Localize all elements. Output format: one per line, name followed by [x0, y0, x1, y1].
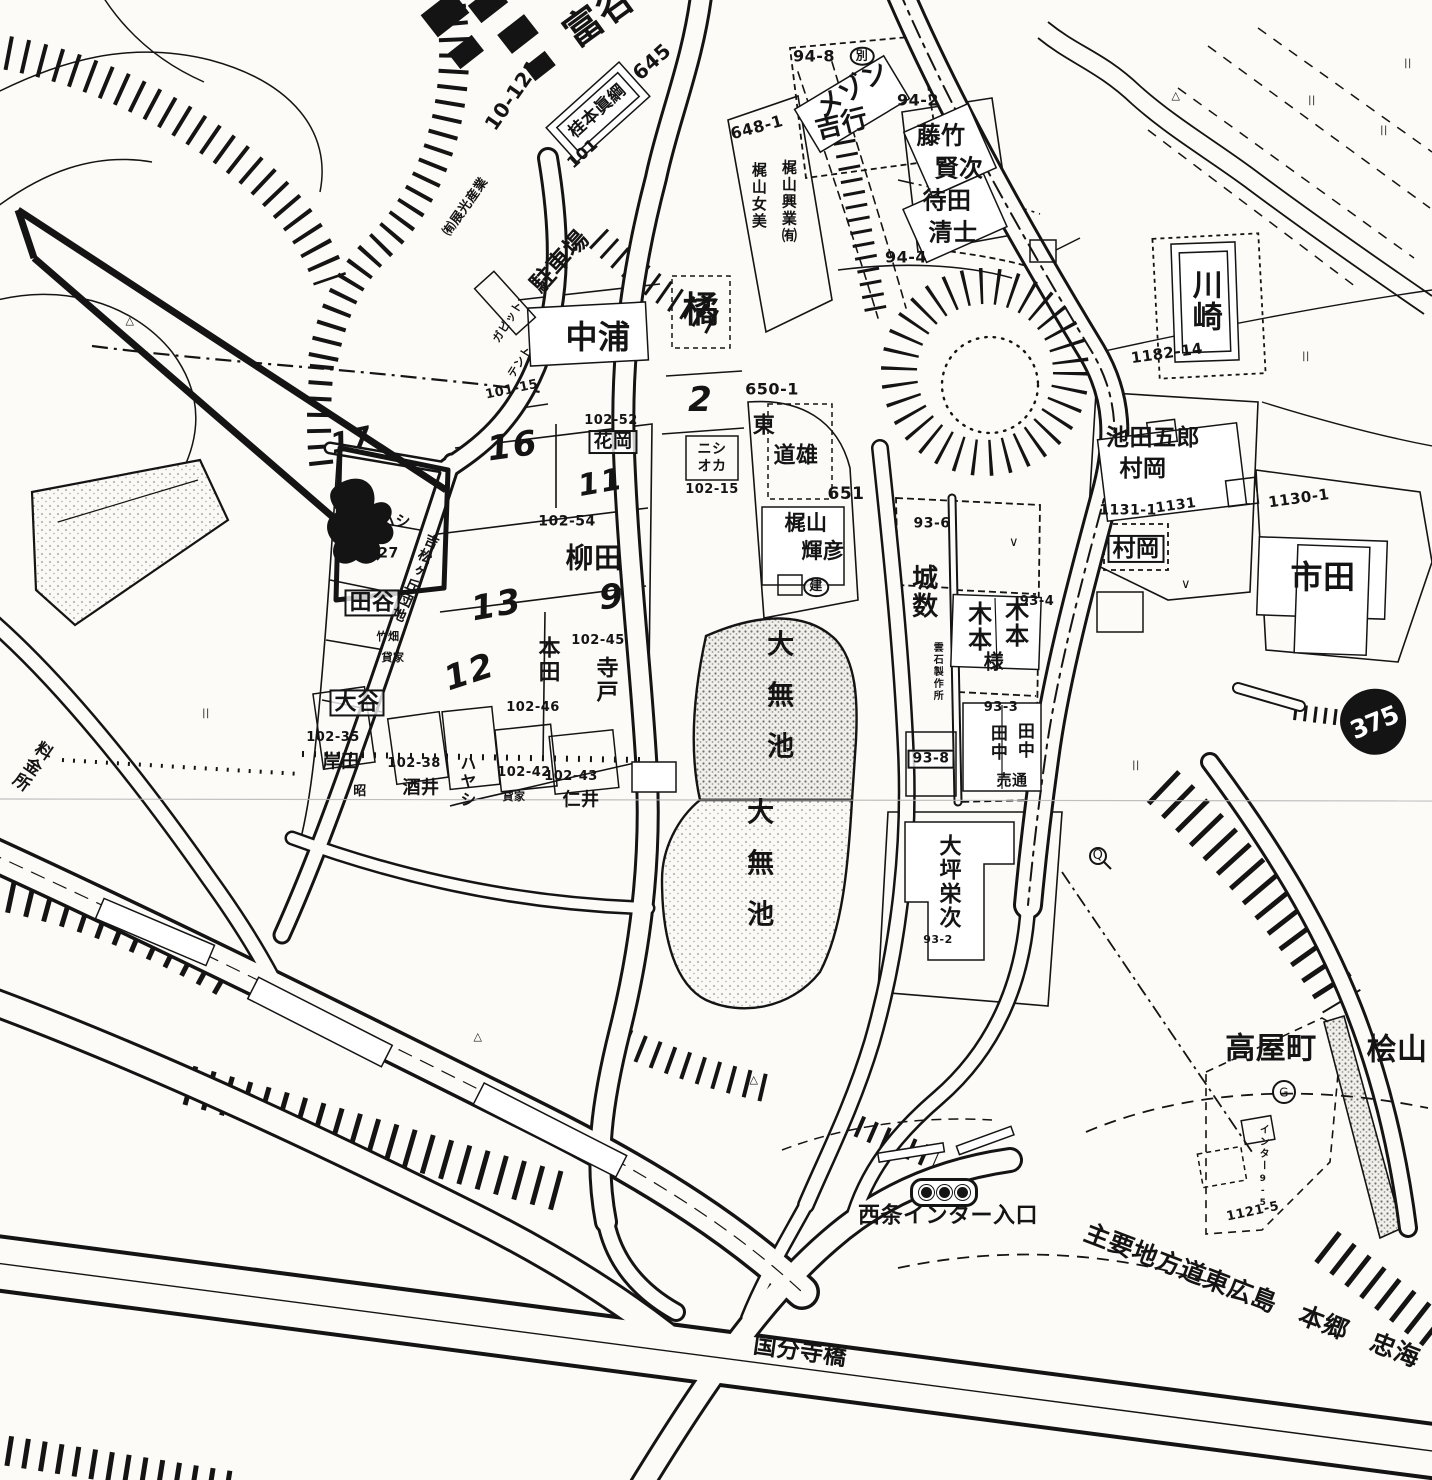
map-label: 市田	[1290, 561, 1355, 595]
map-label-layer: 富谷10-121㈲展光産業645桂本眞綱101駐車場ガピットテント101-159…	[0, 0, 1432, 1480]
map-label: 10-121	[481, 56, 545, 134]
map-label: 2	[688, 383, 714, 419]
map-label: ||	[1302, 352, 1310, 363]
map-label: 売通	[996, 773, 1027, 789]
map-label: 清士	[929, 220, 978, 245]
map-label: 富谷	[557, 0, 643, 55]
map-label: 柳田	[565, 543, 622, 572]
map-label: 主要地方道東広島 本郷 忠海	[1081, 1220, 1424, 1372]
map-label: 101-15	[484, 378, 539, 402]
map-label: △	[474, 1031, 483, 1043]
map-label: 桧山	[1367, 1034, 1428, 1066]
map-label: ∨	[1009, 536, 1019, 550]
map-label: 93-3	[984, 701, 1019, 715]
map-label: 川崎	[1188, 269, 1220, 333]
map-label: オカ	[698, 460, 727, 475]
map-label: 料金所	[6, 737, 53, 794]
map-label: 12	[440, 648, 500, 698]
map-label: 102-35	[306, 731, 360, 745]
map-label: 雲石製作所	[931, 642, 942, 702]
map-label: 高屋町	[1225, 1033, 1317, 1065]
map-label: 94-4	[885, 250, 927, 267]
map-label: テント	[506, 344, 534, 379]
map-label: 西条インター入口	[858, 1204, 1038, 1227]
map-label: 102-43	[544, 770, 598, 784]
map-label: 1131	[1155, 496, 1198, 516]
map-label: 102-15	[685, 483, 739, 497]
map-label: 102-54	[538, 515, 596, 530]
map-label: 梶山興業㈲	[780, 160, 796, 245]
map-label: 102-45	[571, 634, 625, 648]
map-label: 102-52	[584, 414, 638, 428]
map-label: 寺戸	[593, 656, 616, 704]
map-label: 93-6	[913, 517, 950, 532]
map-label: ||	[1380, 126, 1388, 137]
map-label: 国分寺橋	[752, 1334, 848, 1371]
map-label: ||	[1308, 96, 1316, 107]
traffic-signal-icon	[910, 1178, 978, 1207]
map-label: 酒井	[403, 780, 440, 799]
map-label: 様	[984, 652, 1005, 673]
map-label: 仁井	[563, 792, 600, 811]
map-label: 大谷	[329, 689, 384, 716]
map-label: Q	[1093, 849, 1104, 863]
map-label: △	[750, 1074, 759, 1086]
map-label: △	[1172, 90, 1181, 102]
map-label: 賢次	[935, 156, 984, 181]
map-label: 16	[485, 426, 541, 468]
map-label: 1121-5	[1225, 1200, 1280, 1224]
map-label: ヨコハシ	[349, 514, 411, 530]
route-number: 375	[1346, 699, 1402, 744]
map-label: 駐車場	[526, 226, 594, 297]
map-label: 竹畑	[377, 631, 400, 643]
map-canvas: 富谷10-121㈲展光産業645桂本眞綱101駐車場ガピットテント101-159…	[0, 0, 1432, 1480]
map-label: 大坪栄次	[936, 834, 959, 930]
map-label: 102-27	[341, 547, 399, 562]
map-label: ||	[1132, 761, 1140, 772]
map-label: 中浦	[565, 321, 630, 355]
map-label: 貸家	[503, 791, 526, 803]
map-label: 1131-1	[1099, 504, 1157, 519]
map-label: G	[1279, 1087, 1289, 1100]
map-label: 梶山女美	[750, 162, 766, 230]
map-label: 1130-1	[1267, 487, 1330, 511]
signal-dot	[937, 1185, 952, 1200]
map-label: 城数	[908, 564, 935, 620]
map-label: 1182-14	[1130, 341, 1204, 367]
map-label: 待田	[923, 188, 972, 213]
map-label: 94-2	[897, 93, 939, 110]
map-label: 村岡	[1108, 535, 1165, 563]
map-label: 13	[469, 584, 526, 628]
map-label: 大無池	[763, 630, 791, 783]
map-label: 東	[753, 414, 776, 437]
map-label: 648-1	[729, 113, 785, 143]
map-label: 93-2	[923, 934, 953, 946]
map-label: 102-42	[497, 766, 551, 780]
map-label: ハヤシ	[458, 755, 475, 809]
map-label: 93-8	[907, 750, 954, 769]
map-label: 梶山	[785, 512, 828, 534]
map-label: ニシ	[698, 443, 727, 458]
map-label: 17	[328, 421, 376, 459]
map-label: 輝彦	[802, 540, 845, 562]
map-label: 田中	[1014, 722, 1032, 760]
map-label: 木本	[964, 601, 989, 653]
map-label: 貸家	[382, 652, 405, 664]
map-label: 岸田	[323, 754, 360, 773]
map-label: 建	[803, 577, 829, 597]
map-label: 池田五郎	[1106, 426, 1200, 450]
map-label: 101	[564, 136, 601, 172]
map-label: ガピット	[491, 299, 525, 344]
map-label: 木本	[1001, 597, 1026, 649]
map-label: 11	[576, 464, 627, 503]
map-label: 本田	[535, 636, 558, 684]
signal-dot	[919, 1185, 934, 1200]
map-label: 昭	[353, 785, 367, 799]
map-label: 田中	[987, 724, 1005, 762]
map-label: 橘	[683, 292, 720, 330]
map-label: 645	[629, 40, 675, 85]
map-label: 大無池	[743, 798, 771, 951]
map-label: 桂本眞綱	[566, 82, 630, 142]
map-label: 村岡	[1120, 457, 1167, 481]
map-label: ㈲展光産業	[441, 175, 491, 238]
map-label: ∨	[1181, 578, 1191, 592]
map-label: 藤竹	[917, 123, 966, 148]
map-label: 9	[598, 579, 627, 617]
map-label: ||	[1404, 59, 1412, 70]
map-label: 650-1	[745, 382, 799, 399]
map-label: ||	[202, 709, 210, 720]
map-label: 花岡	[588, 430, 637, 454]
map-label: 102-46	[506, 701, 560, 715]
signal-dot	[955, 1185, 970, 1200]
map-label: 651	[828, 486, 865, 504]
map-label: 94-8	[793, 49, 835, 66]
map-label: 道雄	[773, 444, 818, 467]
map-label: △	[126, 315, 135, 327]
map-label: インター	[1257, 1124, 1268, 1172]
map-label: 102-38	[387, 757, 441, 771]
